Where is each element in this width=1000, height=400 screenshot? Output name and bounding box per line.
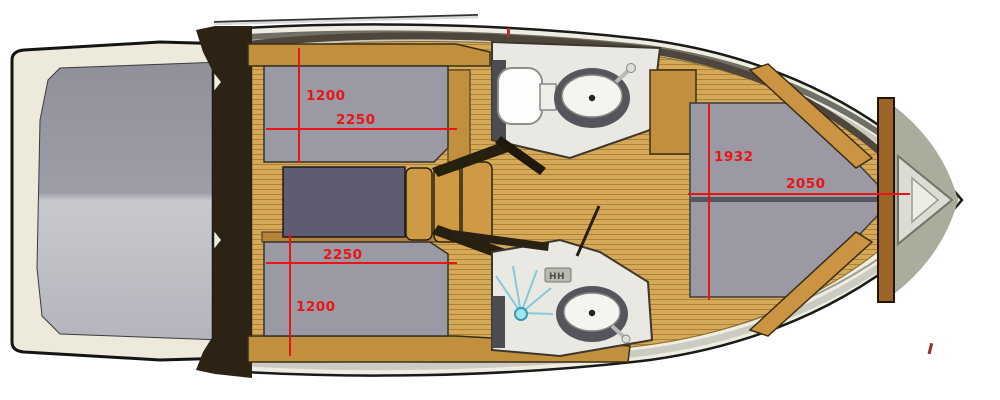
- dim-label-stbd-length: 2250: [323, 247, 363, 263]
- sink-drain-icon: [589, 95, 595, 101]
- shower-sink-drain-icon: [589, 310, 595, 316]
- swim-platform: [12, 42, 238, 360]
- engine-hatch: [37, 62, 238, 340]
- dim-label-bow-length: 2050: [786, 176, 826, 192]
- step-3: [462, 162, 492, 244]
- bow-cabin: [650, 64, 958, 336]
- dim-label-port-width: 1200: [306, 88, 346, 104]
- dinette-table: [283, 167, 405, 237]
- floor-plan-svg: HH 1200 2250 2250 1200 1932: [0, 0, 1000, 400]
- dim-label-port-length: 2250: [336, 112, 376, 128]
- vent-grille-label: HH: [549, 272, 565, 282]
- shower-counter-left: [492, 296, 505, 348]
- berth-split-line: [690, 197, 880, 202]
- step-1: [406, 168, 432, 240]
- wood-header-port: [248, 44, 490, 66]
- hull-marker-port: [507, 28, 510, 37]
- bow-cabinet-port: [650, 70, 696, 154]
- bow-bulkhead: [878, 98, 894, 302]
- dim-label-bow-width: 1932: [714, 149, 754, 165]
- shower-faucet-head-icon: [622, 335, 630, 343]
- boat-floor-plan: HH 1200 2250 2250 1200 1932: [0, 0, 1000, 400]
- toilet-tank-icon: [540, 84, 556, 110]
- toilet-icon: [498, 68, 542, 124]
- dim-label-stbd-width: 1200: [296, 299, 336, 315]
- faucet-head-icon: [627, 64, 636, 73]
- hull-marker-starboard: [928, 343, 934, 354]
- wood-panel-aft: [448, 70, 470, 162]
- shower-head-icon: [515, 308, 527, 320]
